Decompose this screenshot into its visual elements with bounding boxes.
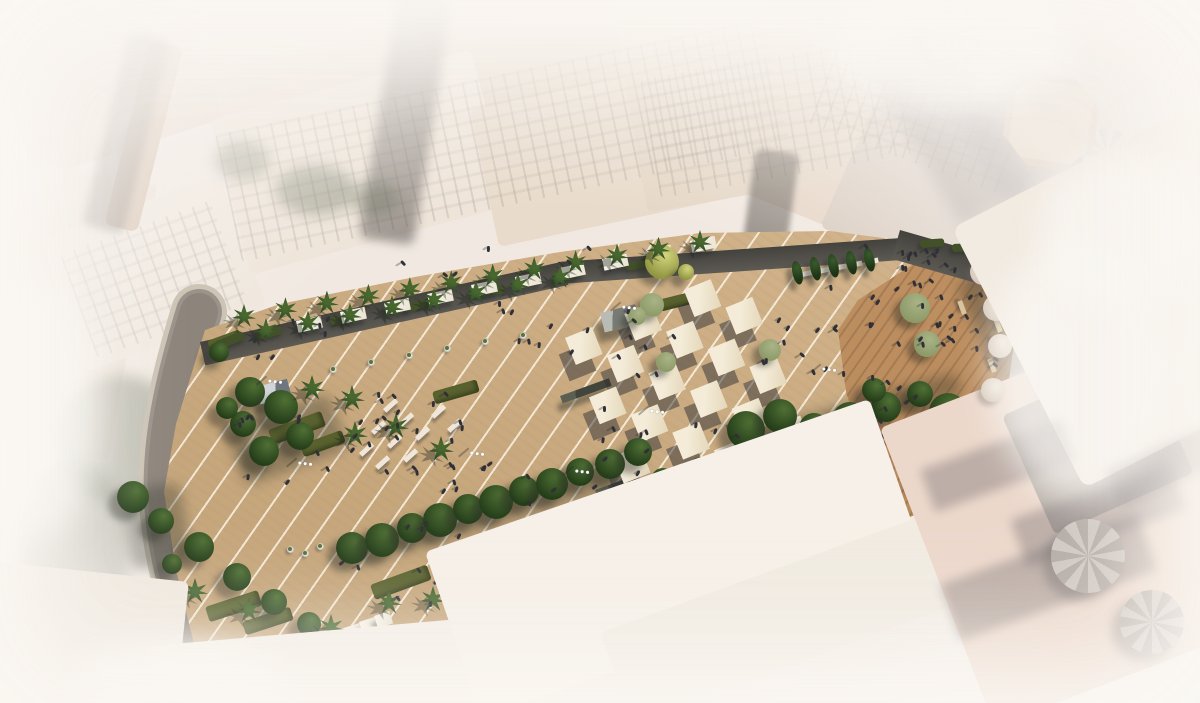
- haze-patch: [0, 280, 100, 540]
- cathedral-dome: [1120, 590, 1184, 654]
- haze-patch: [830, 0, 1070, 110]
- haze-patch: [1040, 150, 1200, 310]
- aerial-plaza-rendering: [0, 0, 1200, 703]
- cathedral-dome: [1051, 519, 1125, 593]
- foreground-buildings: [0, 0, 1200, 703]
